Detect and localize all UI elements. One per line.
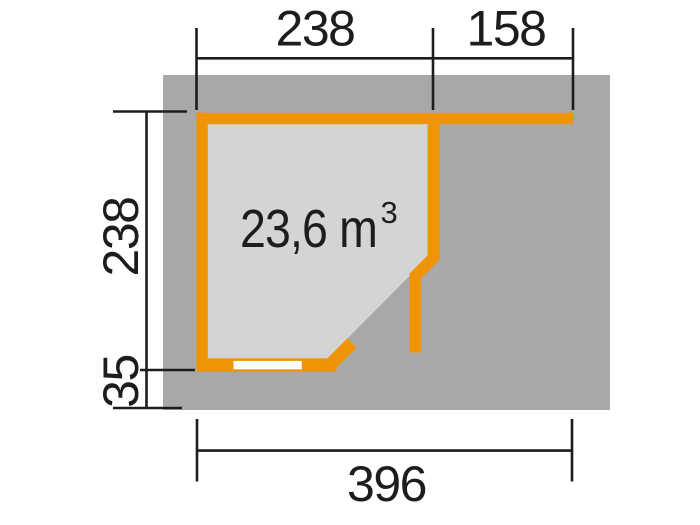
label-top-right-width: 158 [467, 1, 546, 57]
top-wall [197, 113, 574, 124]
door-marking [234, 361, 302, 369]
label-left-height: 238 [93, 198, 149, 277]
volume-value: 23,6 m [240, 199, 377, 259]
label-bottom-total-width: 396 [347, 456, 426, 512]
floor-plan-diagram: 238 158 238 35 396 23,6 m 3 [0, 0, 700, 525]
floor-plan-page: 238 158 238 35 396 23,6 m 3 [0, 0, 700, 525]
left-wall [197, 113, 208, 372]
label-top-width: 238 [276, 1, 355, 57]
label-left-overhang: 35 [93, 355, 149, 408]
volume-label: 23,6 m 3 [240, 195, 397, 259]
volume-superscript: 3 [380, 195, 396, 230]
